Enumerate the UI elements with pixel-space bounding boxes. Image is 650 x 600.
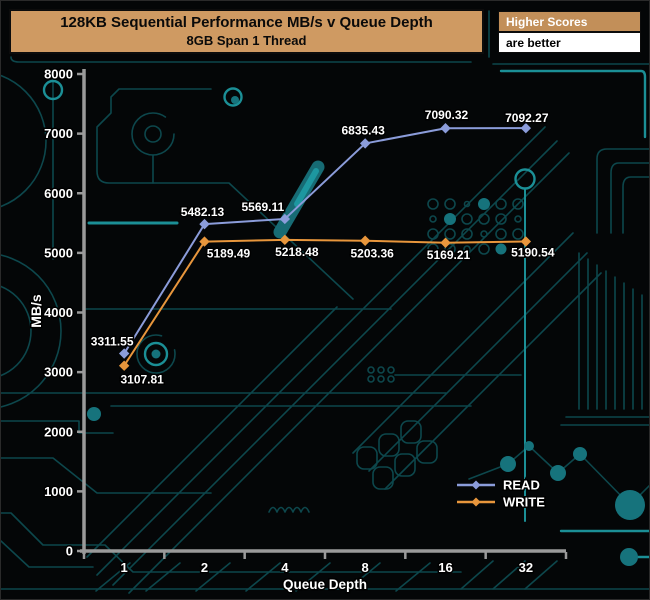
data-label-write: 5190.54 <box>511 246 555 260</box>
x-tick-label: 32 <box>519 560 533 575</box>
y-axis-title: MB/s <box>28 294 44 328</box>
data-label-write: 5169.21 <box>427 248 471 262</box>
data-point-read <box>441 124 450 133</box>
x-tick-label: 8 <box>362 560 369 575</box>
chart-title-box: 128KB Sequential Performance MB/s v Queu… <box>9 9 484 54</box>
x-tick-label: 16 <box>438 560 452 575</box>
y-tick-label: 5000 <box>44 245 73 260</box>
legend-label-read: READ <box>503 478 540 493</box>
chart-title: 128KB Sequential Performance MB/s v Queu… <box>60 14 433 33</box>
y-tick-label: 4000 <box>44 305 73 320</box>
screenshot-root: 128KB Sequential Performance MB/s v Queu… <box>0 0 650 600</box>
data-label-write: 3107.81 <box>120 373 164 387</box>
data-label-read: 5569.11 <box>241 200 284 214</box>
data-label-read: 5482.13 <box>181 205 225 219</box>
chart-subtitle: 8GB Span 1 Thread <box>187 33 307 49</box>
data-point-read <box>120 349 129 358</box>
x-tick-label: 1 <box>121 560 128 575</box>
data-label-read: 3311.55 <box>91 335 134 349</box>
data-point-write <box>441 238 450 247</box>
y-tick-label: 1000 <box>44 484 73 499</box>
are-better-badge: are better <box>498 32 641 53</box>
data-label-read: 6835.43 <box>341 123 385 137</box>
x-tick-label: 2 <box>201 560 208 575</box>
data-point-write <box>280 235 289 244</box>
data-label-write: 5203.36 <box>350 247 394 261</box>
performance-line-chart: 0100020003000400050006000700080001248163… <box>1 1 650 600</box>
data-point-read <box>200 220 209 229</box>
higher-scores-badge: Higher Scores <box>498 11 641 32</box>
data-point-write <box>361 236 370 245</box>
data-label-write: 5189.49 <box>207 247 251 261</box>
y-tick-label: 0 <box>66 544 73 559</box>
legend-swatch-marker-read <box>472 481 481 490</box>
y-tick-label: 2000 <box>44 424 73 439</box>
data-label-read: 7092.27 <box>505 111 549 125</box>
data-label-write: 5218.48 <box>275 245 319 259</box>
y-tick-label: 8000 <box>44 67 73 82</box>
x-axis-title: Queue Depth <box>283 577 367 592</box>
data-label-read: 7090.32 <box>425 108 469 122</box>
legend-label-write: WRITE <box>503 495 545 510</box>
y-tick-label: 6000 <box>44 186 73 201</box>
y-tick-label: 3000 <box>44 365 73 380</box>
y-tick-label: 7000 <box>44 126 73 141</box>
legend-swatch-marker-write <box>472 498 481 507</box>
x-tick-label: 4 <box>281 560 289 575</box>
